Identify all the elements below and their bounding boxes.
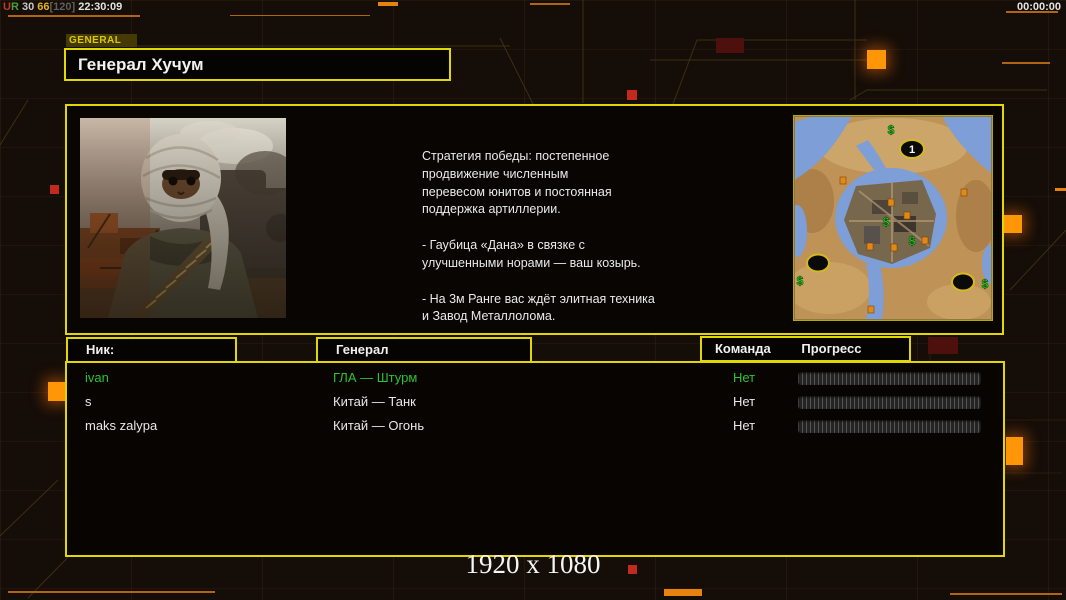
svg-text:$: $ [888, 123, 895, 137]
minimap-image: 1$$$$$ [794, 116, 992, 320]
portrait-image [80, 118, 286, 318]
header-general: Генерал [316, 337, 532, 363]
player-row: ivan ГЛА — Штурм Нет [67, 370, 1003, 390]
deco-line [950, 593, 1062, 595]
header-team-progress: Команда Прогресс [700, 336, 911, 362]
deco-dash [378, 2, 398, 6]
deco-dash [664, 589, 702, 596]
player-nick: ivan [85, 370, 109, 385]
player-general: Китай — Танк [333, 394, 416, 409]
general-portrait [80, 118, 286, 318]
progress-bar [798, 396, 981, 409]
general-name: Генерал Хучум [78, 55, 204, 74]
deco-line [530, 3, 570, 5]
strategy-text: Стратегия победы: постепенное продвижени… [422, 148, 692, 344]
header-progress: Прогресс [801, 338, 861, 360]
player-nick: s [85, 394, 92, 409]
deco-glow-square [1006, 437, 1023, 465]
player-row: s Китай — Танк Нет [67, 394, 1003, 414]
general-info-panel: Стратегия победы: постепенное продвижени… [65, 104, 1004, 335]
strategy-paragraph: - На 3м Ранге вас ждёт элитная техника и… [422, 291, 692, 327]
deco-dark-patch [716, 38, 744, 53]
match-timer: 00:00:00 [1017, 1, 1061, 13]
svg-text:1: 1 [909, 144, 915, 156]
minimap: 1$$$$$ [793, 115, 993, 321]
strategy-paragraph: Стратегия победы: постепенное продвижени… [422, 148, 692, 219]
player-team: Нет [733, 370, 755, 385]
player-general: ГЛА — Штурм [333, 370, 417, 385]
status-text: UR 30 66[120] 22:30:09 [3, 1, 122, 13]
player-nick: maks zalypa [85, 418, 157, 433]
deco-glow-square [1004, 215, 1022, 233]
deco-line [1002, 62, 1050, 64]
player-row: maks zalypa Китай — Огонь Нет [67, 418, 1003, 438]
header-team: Команда [715, 338, 771, 360]
deco-dash [1055, 188, 1066, 191]
player-team: Нет [733, 418, 755, 433]
svg-text:$: $ [797, 274, 804, 288]
deco-glow-square [867, 50, 886, 69]
game-screen: UR 30 66[120] 22:30:09 00:00:00 GENERAL … [0, 0, 1066, 600]
progress-bar [798, 372, 981, 385]
deco-line [8, 15, 140, 17]
strategy-paragraph: - Гаубица «Дана» в связке с улучшенными … [422, 237, 692, 273]
tab-general[interactable]: GENERAL [66, 34, 137, 47]
player-table: ivan ГЛА — Штурм Нет s Китай — Танк Нет … [65, 361, 1005, 557]
deco-red-square [50, 185, 59, 194]
svg-text:$: $ [909, 234, 916, 248]
deco-red-square [627, 90, 637, 100]
deco-dark-patch [928, 337, 958, 354]
player-team: Нет [733, 394, 755, 409]
deco-line [8, 591, 215, 593]
svg-text:$: $ [982, 277, 989, 291]
player-general: Китай — Огонь [333, 418, 424, 433]
header-nick: Ник: [66, 337, 237, 363]
resolution-label: 1920 x 1080 [0, 549, 1066, 580]
svg-text:$: $ [883, 215, 890, 229]
progress-bar [798, 420, 981, 433]
general-title-box: Генерал Хучум [64, 48, 451, 81]
deco-line [230, 15, 370, 16]
